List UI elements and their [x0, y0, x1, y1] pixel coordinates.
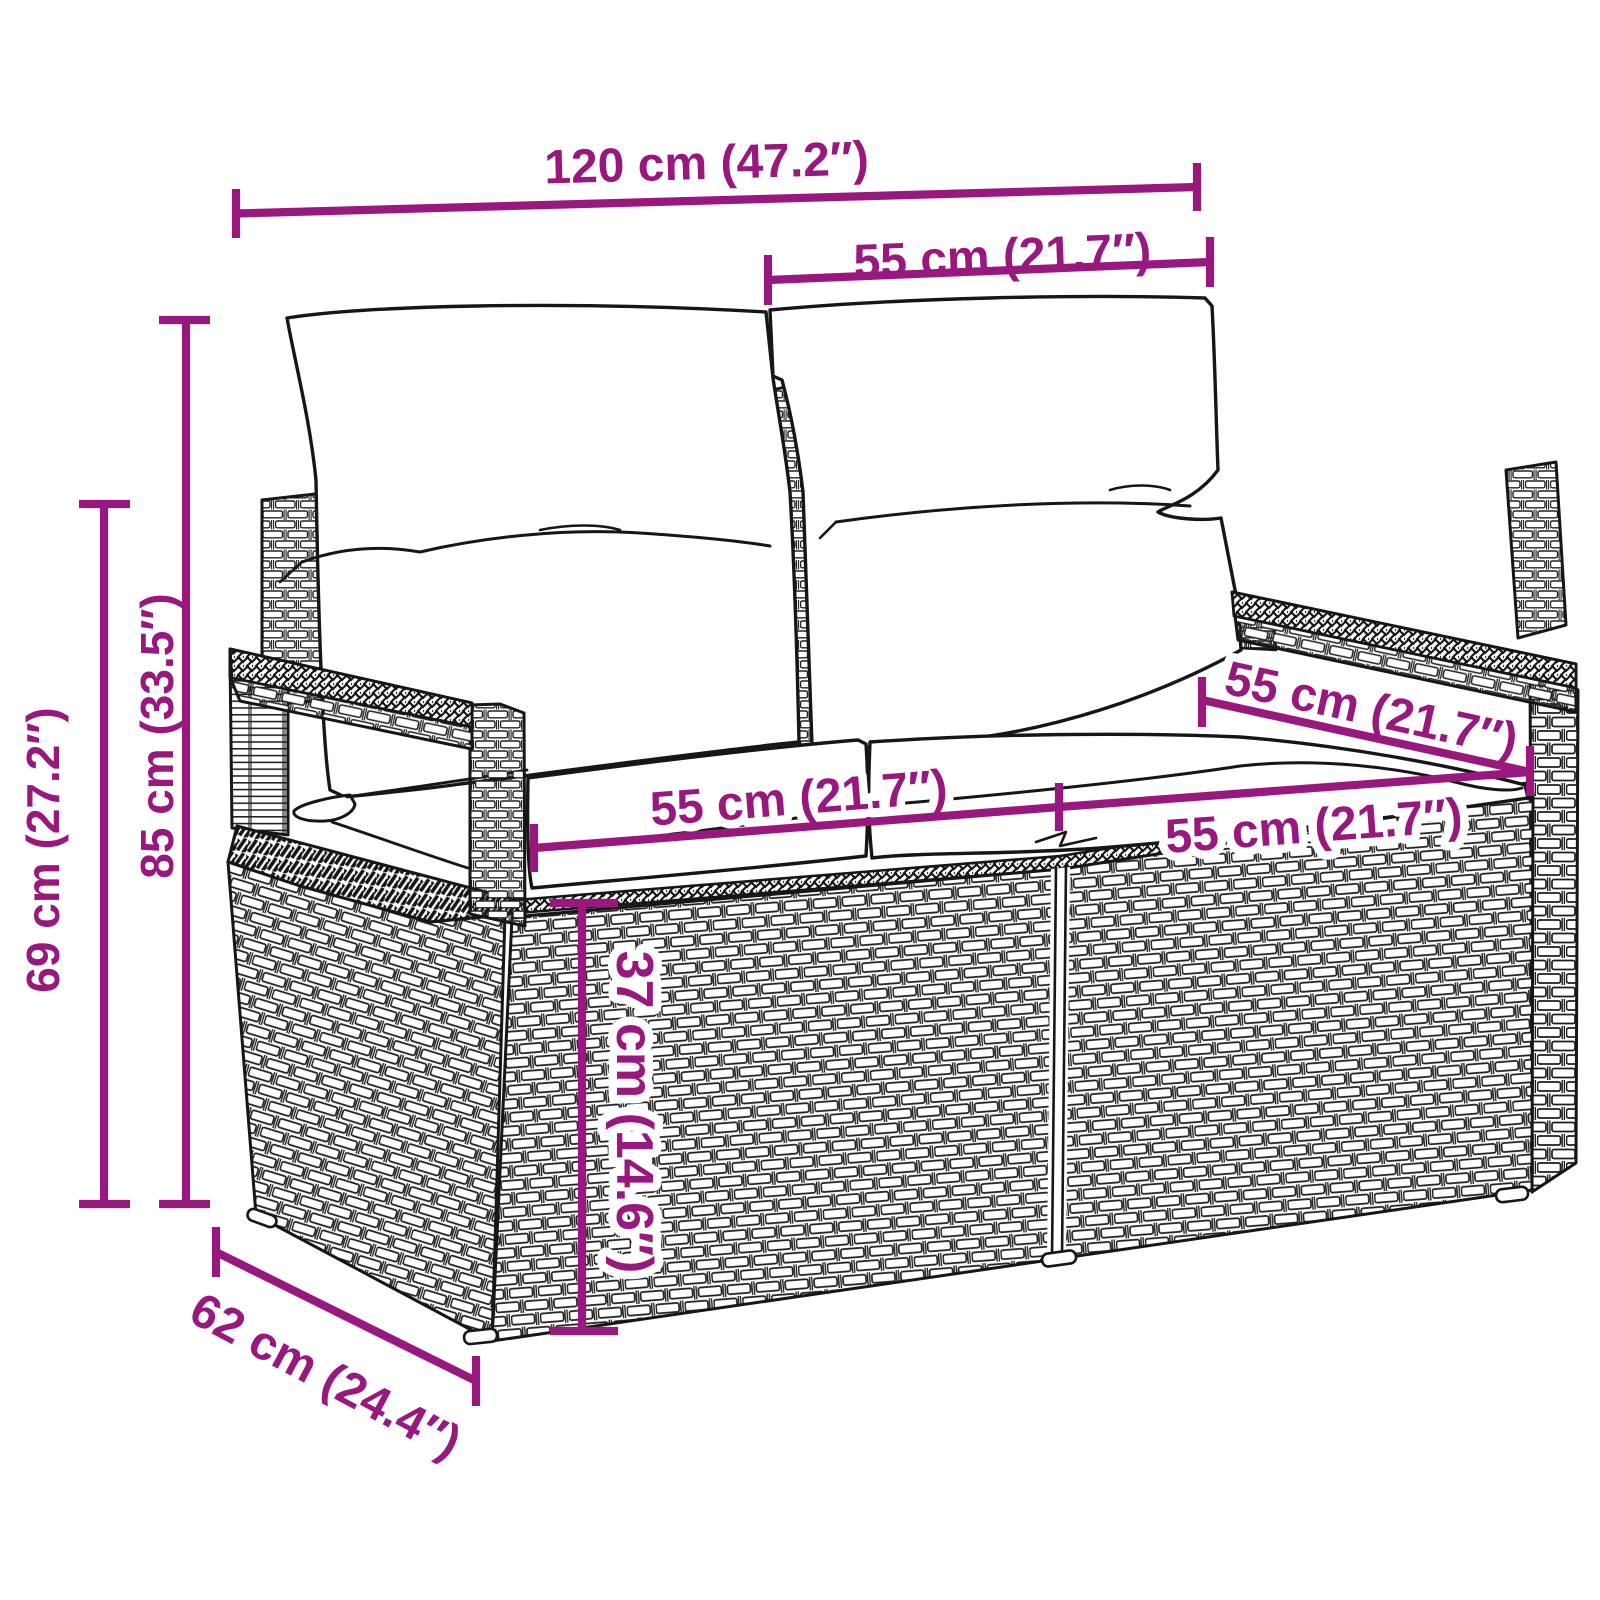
- svg-text:37 cm (14.6″): 37 cm (14.6″): [605, 951, 663, 1274]
- svg-text:69 cm (27.2″): 69 cm (27.2″): [17, 707, 69, 992]
- svg-text:85 cm (33.5″): 85 cm (33.5″): [131, 593, 183, 878]
- svg-text:120 cm (47.2″): 120 cm (47.2″): [544, 132, 870, 194]
